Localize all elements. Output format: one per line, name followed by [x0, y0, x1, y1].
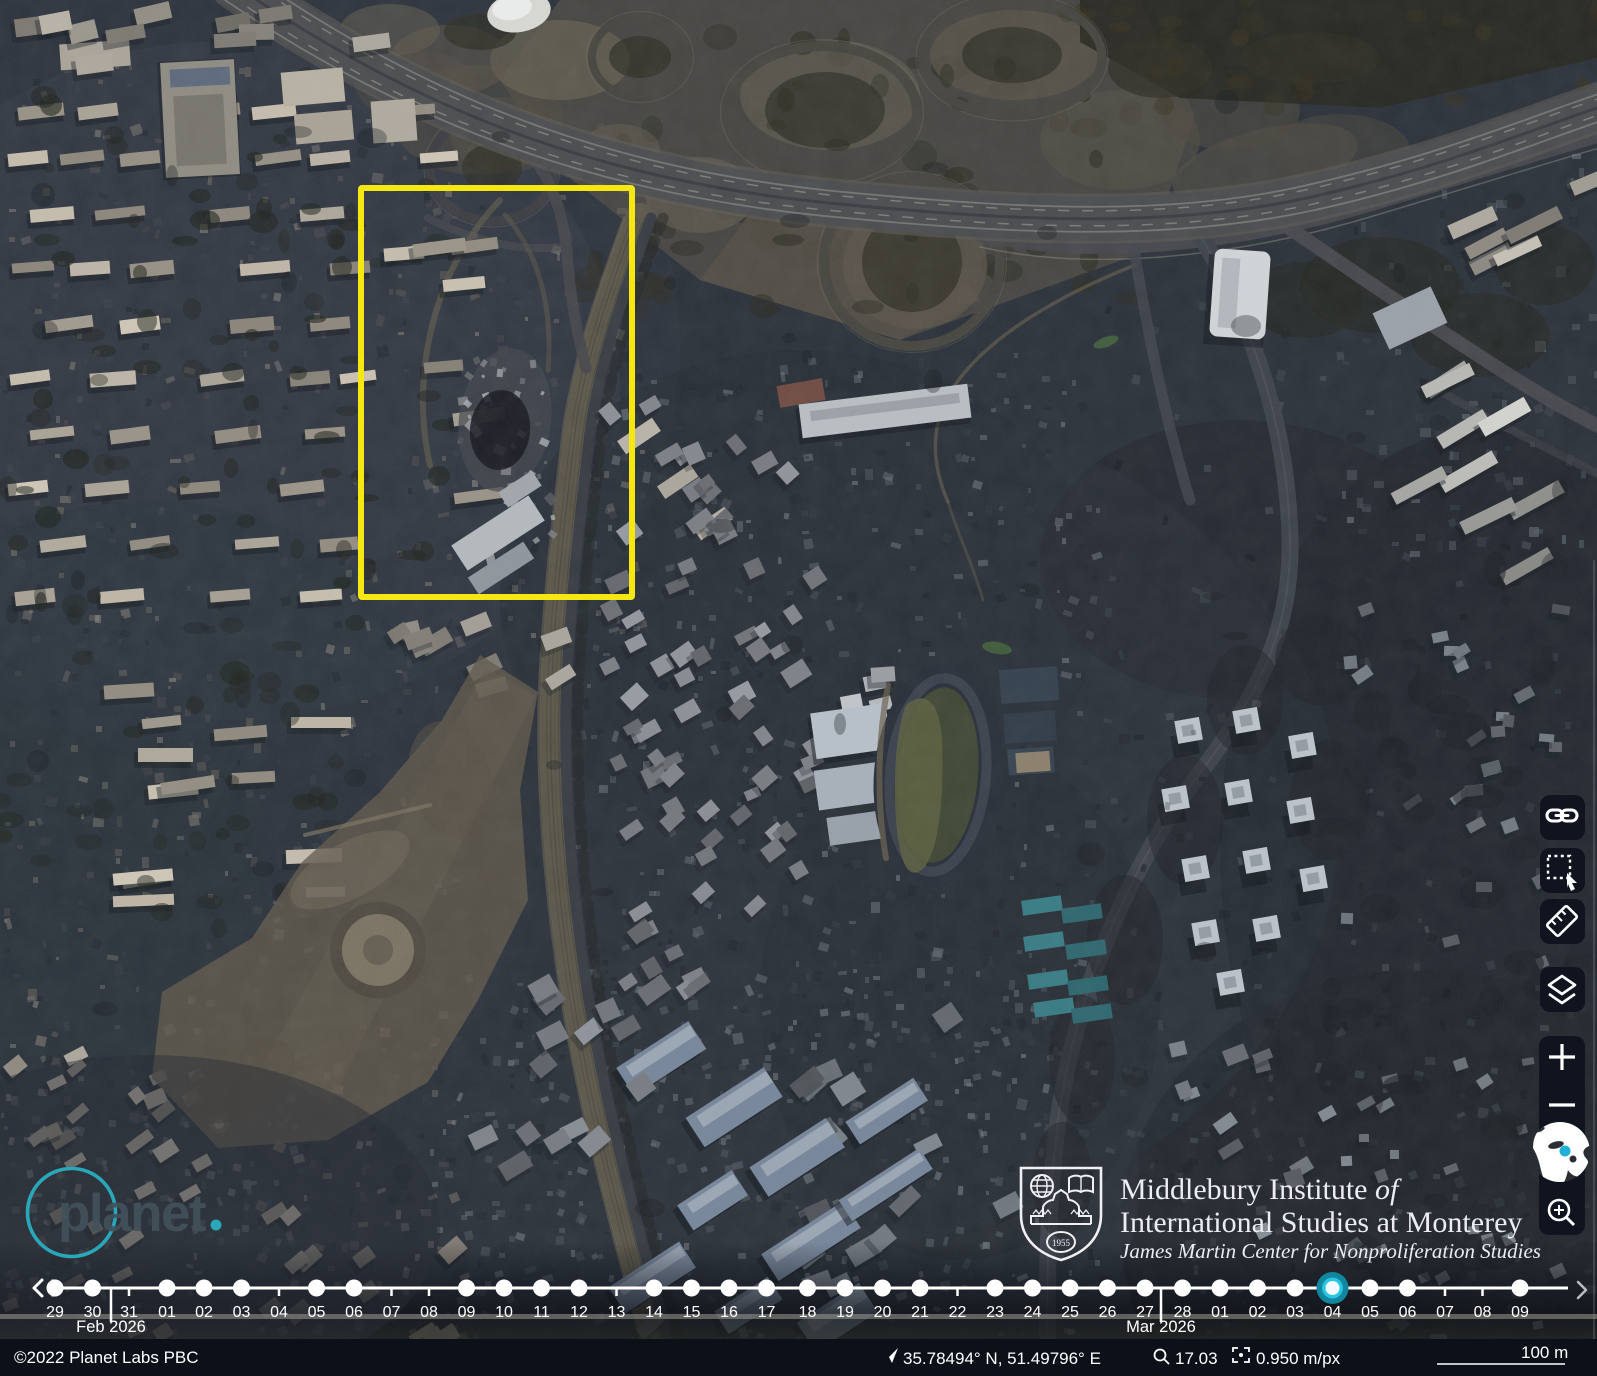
- svg-text:22: 22: [949, 1304, 967, 1321]
- svg-text:Middlebury Institute of: Middlebury Institute of: [1120, 1173, 1402, 1206]
- svg-text:0.950 m/px: 0.950 m/px: [1256, 1349, 1341, 1368]
- svg-text:06: 06: [1399, 1304, 1417, 1321]
- svg-text:07: 07: [383, 1304, 401, 1321]
- svg-text:International Studies at Monte: International Studies at Monterey: [1120, 1206, 1522, 1239]
- svg-text:29: 29: [46, 1304, 64, 1321]
- svg-text:20: 20: [874, 1304, 892, 1321]
- svg-text:01: 01: [158, 1304, 176, 1321]
- svg-text:19: 19: [836, 1304, 854, 1321]
- svg-text:02: 02: [195, 1304, 213, 1321]
- svg-text:24: 24: [1024, 1304, 1042, 1321]
- svg-text:05: 05: [1361, 1304, 1379, 1321]
- svg-text:14: 14: [645, 1304, 663, 1321]
- svg-text:07: 07: [1436, 1304, 1454, 1321]
- svg-text:15: 15: [683, 1304, 701, 1321]
- svg-text:11: 11: [533, 1304, 550, 1321]
- svg-text:17.03: 17.03: [1175, 1349, 1218, 1368]
- svg-text:21: 21: [911, 1304, 929, 1321]
- svg-text:Feb 2026: Feb 2026: [76, 1318, 146, 1336]
- svg-text:16: 16: [720, 1304, 738, 1321]
- svg-text:05: 05: [308, 1304, 326, 1321]
- svg-text:23: 23: [986, 1304, 1004, 1321]
- svg-text:17: 17: [758, 1304, 776, 1321]
- svg-text:planet: planet: [58, 1184, 206, 1243]
- svg-text:02: 02: [1249, 1304, 1267, 1321]
- svg-text:06: 06: [345, 1304, 363, 1321]
- svg-text:13: 13: [608, 1304, 626, 1321]
- svg-text:James Martin Center for Nonpro: James Martin Center for Nonproliferation…: [1120, 1239, 1541, 1263]
- svg-text:Mar 2026: Mar 2026: [1126, 1318, 1196, 1336]
- svg-text:04: 04: [270, 1304, 288, 1321]
- svg-text:08: 08: [1474, 1304, 1492, 1321]
- svg-text:26: 26: [1099, 1304, 1117, 1321]
- svg-text:09: 09: [1511, 1304, 1529, 1321]
- svg-text:09: 09: [458, 1304, 476, 1321]
- svg-text:03: 03: [1286, 1304, 1304, 1321]
- svg-text:©2022 Planet Labs PBC: ©2022 Planet Labs PBC: [14, 1348, 199, 1367]
- svg-text:04: 04: [1324, 1304, 1342, 1321]
- svg-text:25: 25: [1061, 1304, 1079, 1321]
- svg-text:18: 18: [799, 1304, 817, 1321]
- svg-text:01: 01: [1211, 1304, 1229, 1321]
- svg-text:03: 03: [233, 1304, 251, 1321]
- svg-text:1955: 1955: [1052, 1238, 1071, 1248]
- svg-text:10: 10: [495, 1304, 513, 1321]
- svg-text:08: 08: [420, 1304, 438, 1321]
- svg-text:35.78494° N, 51.49796° E: 35.78494° N, 51.49796° E: [903, 1349, 1101, 1368]
- svg-text:12: 12: [570, 1304, 588, 1321]
- svg-text:100 m: 100 m: [1521, 1343, 1568, 1362]
